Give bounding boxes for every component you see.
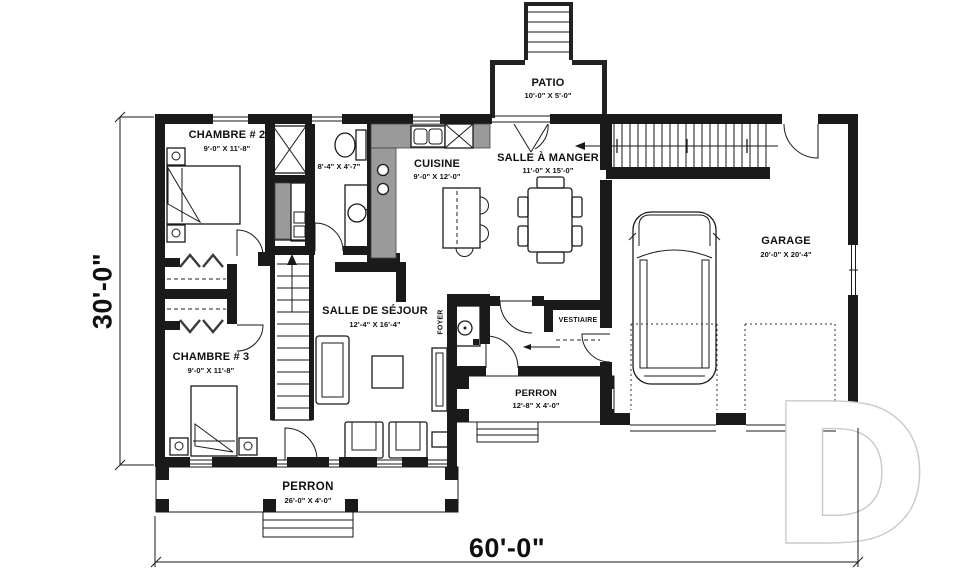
- nightstand: [239, 438, 257, 455]
- room-label-perron-facade: PERRON: [282, 481, 334, 493]
- patio-door-sill: [492, 116, 550, 122]
- room-dims-chambre-2: 9'-0" X 11'-8": [204, 144, 251, 153]
- room-label-patio: PATIO: [532, 77, 565, 89]
- toilet: [335, 130, 366, 160]
- window-bottom-1: [190, 460, 212, 464]
- overall-depth-dimension: 30'-0": [88, 253, 119, 329]
- chair: [518, 226, 528, 246]
- vanity-sink: [345, 185, 370, 253]
- room-dims-patio: 10'-0" X 5'-0": [524, 91, 571, 100]
- chair: [518, 197, 528, 217]
- livingroom-furniture: [316, 336, 448, 458]
- window-bottom-5: [428, 460, 447, 464]
- armchair: [389, 422, 427, 458]
- door-vestiaire-garage: [582, 334, 610, 362]
- room-dims-salle-de-sejour: 12'-4" X 16'-4": [349, 320, 400, 329]
- floor-plan-drawing: D: [0, 0, 960, 569]
- door-bathroom: [315, 223, 343, 251]
- door-garage-house: [784, 124, 818, 158]
- room-dims-chambre-3: 9'-0" X 11'-8": [188, 366, 235, 375]
- side-table: [432, 432, 448, 447]
- island-stool: [480, 197, 489, 214]
- chair: [572, 197, 582, 217]
- bedroom2-furniture: [167, 148, 240, 242]
- bed: [191, 386, 237, 456]
- room-dims-salle-de-bain: 8'-4" X 4'-7": [318, 162, 361, 171]
- window-bottom-4: [377, 460, 402, 464]
- stair-direction-arrow: [287, 254, 297, 265]
- armchair: [345, 422, 383, 458]
- window-garage-right: [849, 245, 858, 295]
- patio-stairs-rail: [524, 2, 528, 60]
- room-label-cuisine: CUISINE: [414, 158, 460, 170]
- basement-stairs: [270, 240, 314, 420]
- dining-furniture: [518, 177, 582, 263]
- window-bottom-3: [329, 460, 339, 464]
- kitchen-island: [443, 188, 480, 248]
- door-chambre-3: [237, 325, 263, 351]
- nightstand: [167, 148, 185, 165]
- patio-sliding-door: [514, 124, 548, 152]
- room-dims-perron-entree: 12'-8" X 4'-0": [512, 401, 559, 410]
- door-entry-sejour: [500, 301, 532, 333]
- stove-burner: [378, 184, 389, 195]
- door-hall-sejour: [285, 428, 317, 460]
- window-top-1: [213, 117, 248, 121]
- room-label-perron-entree: PERRON: [515, 388, 557, 399]
- builder-logo-watermark: D: [768, 362, 930, 569]
- porch-steps: [263, 512, 353, 537]
- room-dims-perron-facade: 26'-0" X 4'-0": [284, 496, 331, 505]
- porch-steps: [477, 422, 538, 442]
- coffee-table: [372, 356, 403, 388]
- window-bottom-2: [277, 460, 287, 464]
- room-dims-salle-a-manger: 11'-0" X 15'-0": [523, 166, 574, 175]
- room-label-chambre-3: CHAMBRE # 3: [173, 351, 250, 363]
- patio-stairs-treads: [528, 12, 569, 52]
- nightstand: [170, 438, 188, 455]
- room-label-vestiaire: VESTIAIRE: [559, 317, 598, 324]
- room-label-foyer: FOYER: [438, 309, 445, 334]
- room-label-salle-de-sejour: SALLE DE SÉJOUR: [322, 305, 428, 317]
- bathroom-fixtures: [273, 126, 370, 253]
- patio-structure: [490, 2, 607, 118]
- overall-width-dimension: 60'-0": [469, 533, 545, 564]
- floor-plan-page: D CHAMBRE # 2 9'-0" X 11'-8" 8'-4" X 4'-…: [0, 0, 960, 569]
- room-label-garage: GARAGE: [761, 235, 810, 247]
- island-stool: [456, 248, 473, 257]
- room-label-chambre-2: CHAMBRE # 2: [189, 129, 266, 141]
- room-label-salle-a-manger: SALLE À MANGER: [497, 152, 599, 164]
- chair: [572, 226, 582, 246]
- stair-direction-arrow: [575, 142, 585, 150]
- sofa: [316, 336, 349, 404]
- chair: [537, 177, 564, 188]
- bedroom3-furniture: [170, 386, 257, 456]
- tv-unit: [432, 348, 447, 411]
- window-top-2: [312, 117, 342, 121]
- bed: [167, 166, 240, 224]
- kitchen-fixtures: [371, 124, 490, 258]
- chair: [537, 252, 564, 263]
- van: [629, 212, 720, 384]
- room-dims-cuisine: 9'-0" X 12'-0": [413, 172, 460, 181]
- stove-burner: [378, 165, 389, 176]
- laundry-unit: [275, 183, 291, 239]
- door-front-entry: [486, 336, 518, 368]
- island-stool: [480, 225, 489, 242]
- exterior-walls: [155, 114, 858, 467]
- room-dims-garage: 20'-0" X 20'-4": [760, 250, 811, 259]
- dining-table: [528, 188, 572, 252]
- nightstand: [167, 225, 185, 242]
- window-kitchen: [413, 117, 440, 121]
